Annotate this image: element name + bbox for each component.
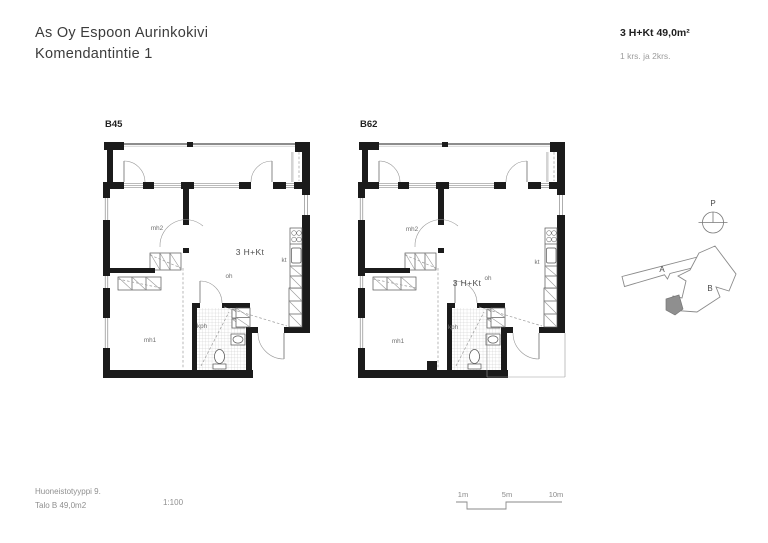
north-label: P xyxy=(710,199,715,208)
north-arrow-icon xyxy=(699,212,728,233)
sheet-footer: Huoneistotyyppi 9. Talo B 49,0m2 xyxy=(35,485,101,512)
apartment-type-header: 3 H+Kt 49,0m² xyxy=(620,27,690,39)
plan-label-b62: B62 xyxy=(360,119,377,130)
scale-mark-10m: 10m xyxy=(549,490,564,499)
scale-mark-5m: 5m xyxy=(502,490,512,499)
room-label-mh1: mh1 xyxy=(144,337,157,344)
room-label-kt: kt xyxy=(535,259,540,266)
building-a-label: A xyxy=(659,265,665,274)
room-label-mh2: mh2 xyxy=(406,226,419,233)
sheet-title: As Oy Espoon Aurinkokivi Komendantintie … xyxy=(35,23,208,64)
room-label-oh: oh xyxy=(484,275,492,282)
apartment-type-label: 3 H+Kt xyxy=(236,247,265,257)
wall-stub xyxy=(427,361,437,375)
project-name: As Oy Espoon Aurinkokivi xyxy=(35,23,208,44)
apartment-outline-b45 xyxy=(103,142,310,378)
room-label-kph: kph xyxy=(448,324,459,331)
scale-bar: 1m 5m 10m xyxy=(456,490,563,509)
building-b-label: B xyxy=(707,284,712,293)
floor-plan-b62: B62 mh2 3 H+Kt oh kt kph mh1 xyxy=(358,119,565,378)
drawing-canvas: B45 mh2 3 H+Kt kt oh kph mh1 B62 mh2 3 H… xyxy=(0,0,768,543)
room-label-kt: kt xyxy=(282,257,287,264)
room-label-mh2: mh2 xyxy=(151,225,164,232)
site-plan: P A B xyxy=(622,199,736,315)
floor-plan-b45: B45 mh2 3 H+Kt kt oh kph mh1 xyxy=(103,119,310,378)
scale-mark-1m: 1m xyxy=(458,490,468,499)
building-area-note: Talo B 49,0m2 xyxy=(35,499,101,513)
floors-note: 1 krs. ja 2krs. xyxy=(620,51,671,61)
room-label-oh: oh xyxy=(225,273,233,280)
unit-type-note: Huoneistotyyppi 9. xyxy=(35,485,101,499)
room-label-mh1: mh1 xyxy=(392,338,405,345)
plan-label-b45: B45 xyxy=(105,119,123,130)
drawing-scale: 1:100 xyxy=(163,498,183,507)
room-label-kph: kph xyxy=(197,323,208,330)
apartment-type-label: 3 H+Kt xyxy=(453,278,482,288)
project-address: Komendantintie 1 xyxy=(35,44,208,65)
